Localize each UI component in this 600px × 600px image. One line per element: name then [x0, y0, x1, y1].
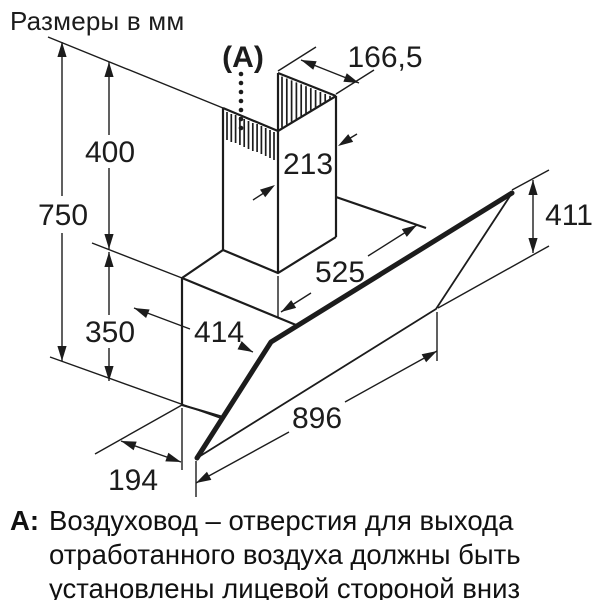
glass-panel-back-edge [197, 193, 512, 458]
dim-525-label: 525 [315, 256, 365, 289]
glass-panel-front-edge [197, 193, 512, 458]
vent-note-prefix: A: [10, 504, 39, 538]
vent-note: A: Воздуховод – отверстия для выхода отр… [10, 504, 590, 600]
vent-note-line: отработанного воздуха должны быть [49, 538, 590, 572]
hood-body-outline [182, 197, 426, 417]
dimension-diagram: (A) 166,5 750 400 350 213 525 414 411 89… [0, 0, 600, 600]
page-title: Размеры в мм [10, 6, 184, 37]
vent-ref-label: (A) [222, 41, 264, 74]
dim-750-label: 750 [38, 199, 88, 232]
vent-note-line: Воздуховод – отверстия для выхода [49, 504, 590, 538]
dim-411-label: 411 [545, 199, 593, 232]
dim-166-label: 166,5 [347, 41, 422, 74]
dim-896-label: 896 [292, 402, 342, 435]
dim-213-label: 213 [283, 148, 333, 181]
dim-350-label: 350 [85, 316, 135, 349]
dim-400-label: 400 [85, 136, 135, 169]
dim-414-label: 414 [194, 316, 244, 349]
dim-194-label: 194 [108, 464, 158, 497]
vent-note-line: установлены лицевой стороной вниз [49, 572, 590, 600]
